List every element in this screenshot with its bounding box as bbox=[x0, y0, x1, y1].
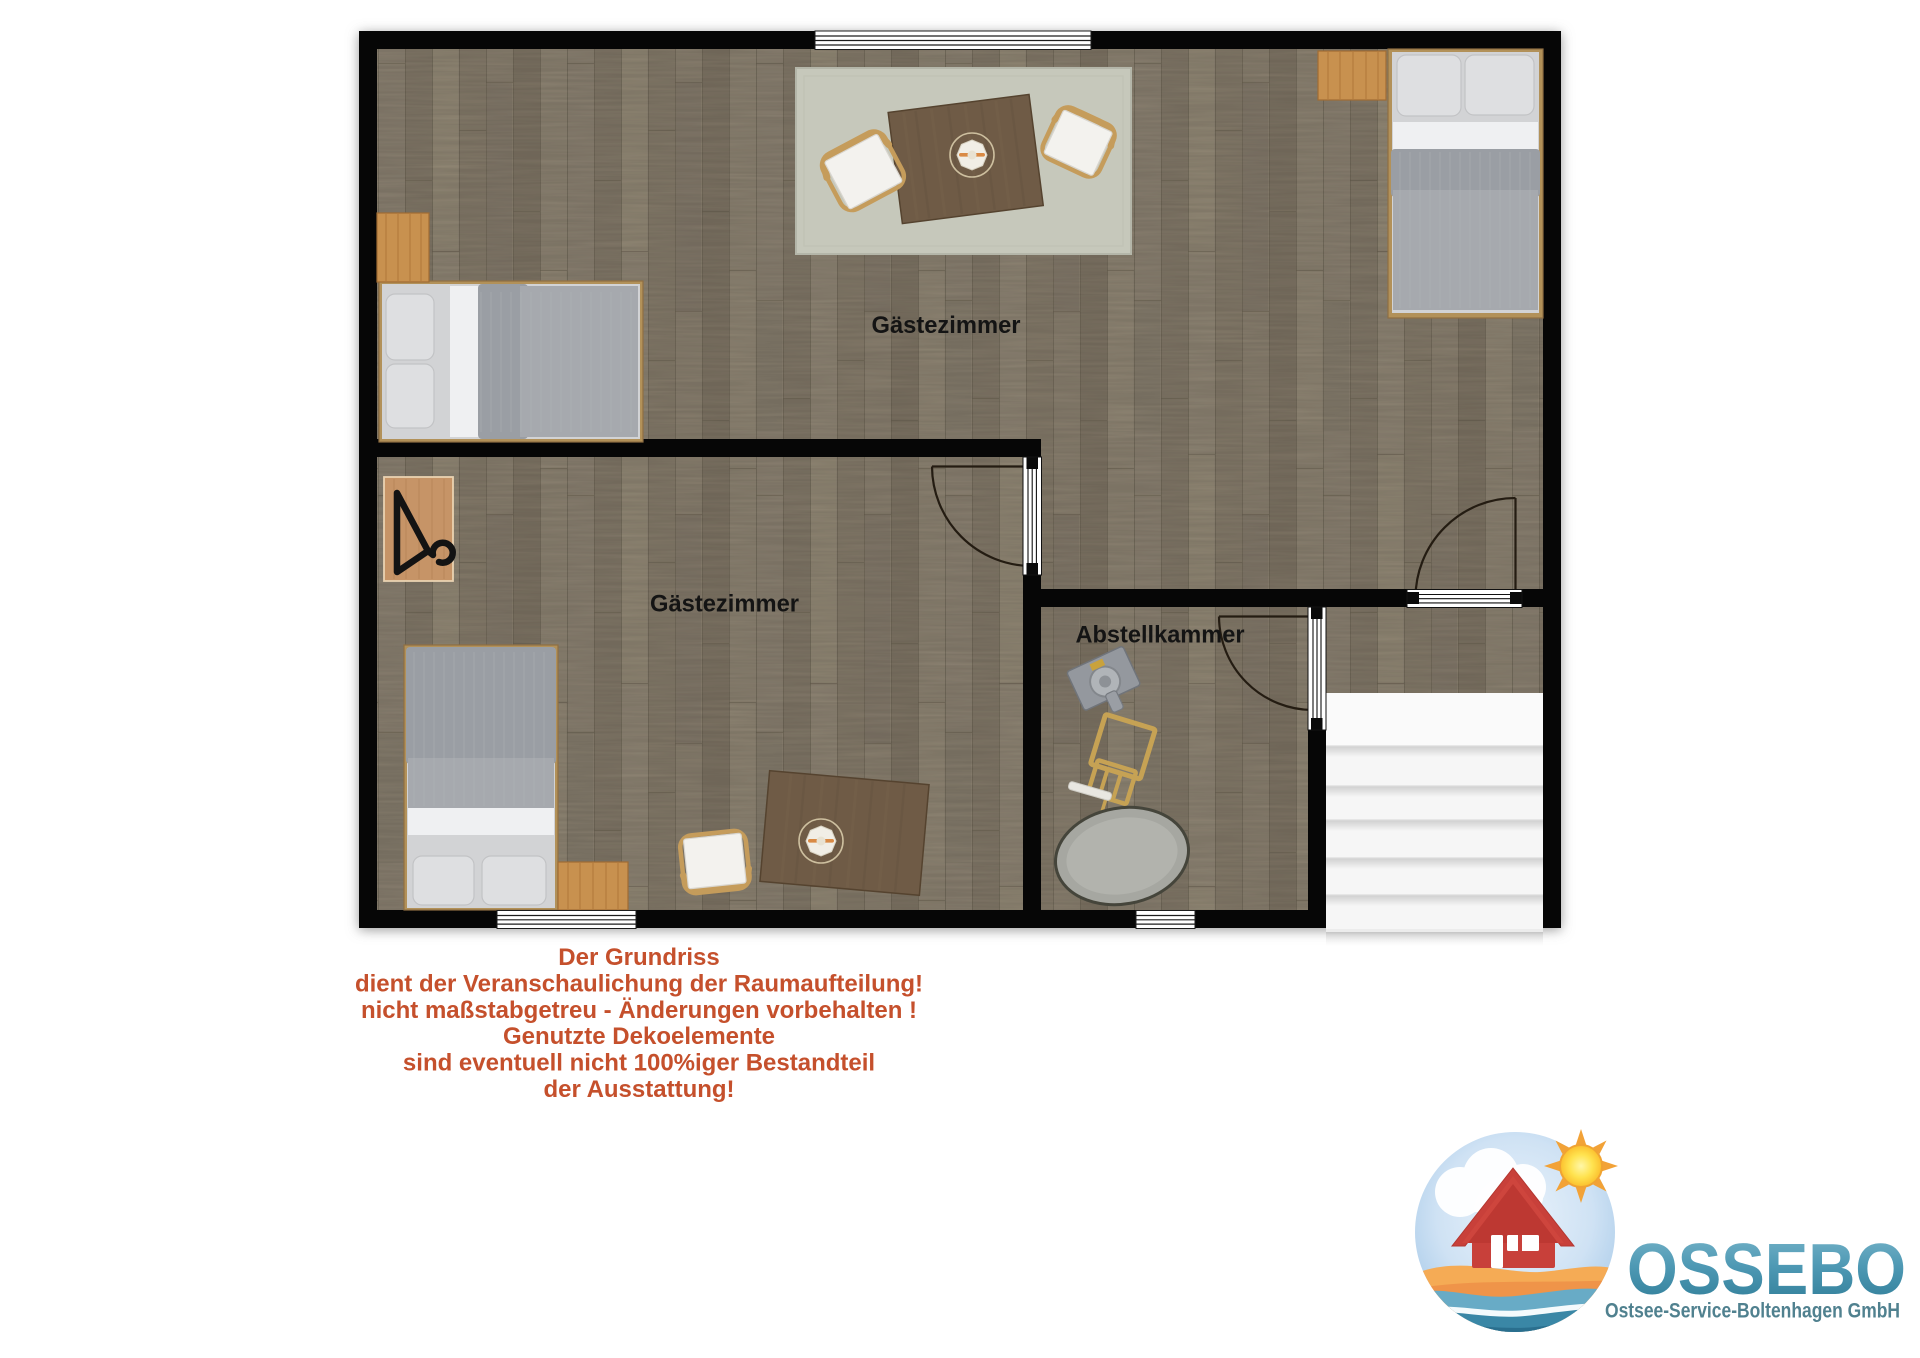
svg-text:Gästezimmer: Gästezimmer bbox=[650, 591, 799, 618]
svg-text:der Ausstattung!: der Ausstattung! bbox=[543, 1076, 734, 1103]
svg-text:OSSEBO: OSSEBO bbox=[1627, 1230, 1906, 1310]
svg-text:sind eventuell nicht 100%iger: sind eventuell nicht 100%iger Bestandtei… bbox=[403, 1050, 875, 1077]
svg-text:dient der Veranschaulichung de: dient der Veranschaulichung der Raumauft… bbox=[355, 970, 923, 997]
svg-text:Gästezimmer: Gästezimmer bbox=[872, 312, 1021, 339]
svg-text:Der Grundriss: Der Grundriss bbox=[558, 944, 719, 971]
svg-text:nicht maßstabgetreu - Änderung: nicht maßstabgetreu - Änderungen vorbeha… bbox=[361, 997, 917, 1024]
svg-text:Abstellkammer: Abstellkammer bbox=[1076, 622, 1245, 649]
svg-text:Genutzte Dekoelemente: Genutzte Dekoelemente bbox=[503, 1023, 775, 1050]
svg-text:Ostsee-Service-Boltenhagen Gmb: Ostsee-Service-Boltenhagen GmbH bbox=[1605, 1300, 1900, 1323]
